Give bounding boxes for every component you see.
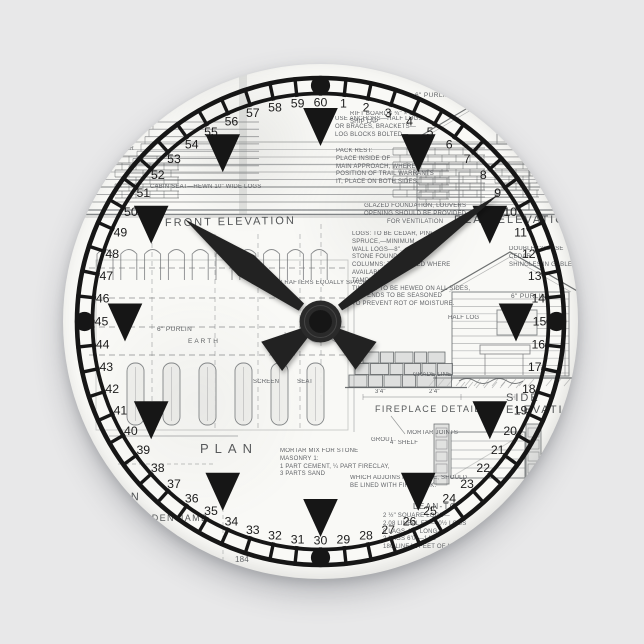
dial-overlay: 1234567891011121314151617181920212223242… (0, 0, 644, 644)
minute-numeral: 14 (531, 292, 545, 306)
minute-tick (488, 473, 503, 486)
minute-numeral: 20 (503, 424, 517, 438)
minute-numeral: 19 (514, 404, 528, 418)
hour-marker-triangle (401, 134, 436, 172)
minute-numeral: 2 (363, 100, 370, 114)
minute-numeral: 44 (96, 337, 110, 351)
minute-numeral: 58 (268, 100, 282, 114)
hour-marker-triangle (205, 134, 240, 172)
minute-numeral: 8 (480, 168, 487, 182)
minute-numeral: 7 (464, 152, 471, 166)
minute-numeral: 56 (225, 114, 239, 128)
minute-numeral: 46 (96, 292, 110, 306)
hour-marker-triangle (499, 304, 534, 342)
minute-numeral: 21 (491, 443, 505, 457)
hour-marker-triangle (134, 206, 169, 244)
minute-numeral: 38 (151, 461, 165, 475)
minute-tick (433, 517, 443, 534)
minute-numeral: 3 (385, 106, 392, 120)
minute-numeral: 37 (167, 477, 181, 491)
minute-numeral: 39 (136, 443, 150, 457)
minute-tick (122, 177, 138, 189)
hour-hand-blade (177, 209, 309, 318)
minute-numeral: 41 (114, 404, 128, 418)
minute-numeral: 42 (105, 382, 119, 396)
minute-numeral: 35 (204, 504, 218, 518)
minute-tick (344, 77, 346, 97)
hour-marker-triangle (303, 108, 338, 146)
minute-numeral: 32 (268, 529, 282, 543)
minute-numeral: 6 (446, 137, 453, 151)
minute-tick (545, 296, 565, 298)
minute-numeral: 23 (460, 477, 474, 491)
minute-numeral: 47 (99, 269, 113, 283)
minute-numeral: 57 (246, 106, 260, 120)
minute-tick (108, 199, 125, 209)
minute-numeral: 25 (423, 504, 437, 518)
minute-numeral: 54 (185, 137, 199, 151)
minute-numeral: 45 (95, 315, 109, 329)
minute-tick (488, 157, 503, 170)
minute-hand-blade (334, 185, 506, 316)
minute-tick (503, 454, 519, 466)
minute-numeral: 33 (246, 523, 260, 537)
minute-tick (176, 504, 188, 520)
minute-tick (453, 123, 465, 139)
minute-numeral: 59 (291, 97, 305, 111)
minute-numeral: 9 (494, 186, 501, 200)
minute-tick (122, 454, 138, 466)
minute-numeral: 17 (528, 360, 542, 374)
minute-tick (108, 434, 125, 444)
minute-tick (472, 489, 485, 504)
minute-tick (76, 345, 96, 347)
minute-tick (516, 434, 533, 444)
minute-numeral: 18 (522, 382, 536, 396)
minute-numeral: 40 (124, 424, 138, 438)
minute-tick (503, 177, 519, 189)
minute-numeral: 27 (381, 523, 395, 537)
minute-numeral: 16 (531, 337, 545, 351)
hour-marker-triangle (134, 401, 169, 439)
minute-numeral: 53 (167, 152, 181, 166)
minute-numeral: 28 (359, 529, 373, 543)
minute-numeral: 11 (514, 225, 527, 239)
hour-marker-triangle (303, 499, 338, 537)
minute-numeral: 29 (337, 532, 351, 546)
minute-tick (433, 109, 443, 126)
minute-numeral: 43 (99, 360, 113, 374)
minute-numeral: 1 (340, 97, 347, 111)
cardinal-dot (75, 312, 94, 331)
minute-tick (76, 296, 96, 298)
minute-tick (453, 504, 465, 520)
minute-hand (261, 179, 510, 371)
minute-tick (545, 345, 565, 347)
minute-tick (472, 139, 485, 154)
product-photo: FRONT ELEVATION REAR ELEVATION SIDE ELEV… (0, 0, 644, 644)
hour-marker-triangle (473, 401, 508, 439)
hour-marker-triangle (108, 304, 143, 342)
minute-tick (295, 546, 297, 566)
minute-tick (198, 109, 208, 126)
wall-clock: FRONT ELEVATION REAR ELEVATION SIDE ELEV… (0, 0, 644, 644)
minute-numeral: 51 (136, 186, 150, 200)
minute-tick (516, 199, 533, 209)
minute-numeral: 12 (522, 247, 536, 261)
hand-hub-cap (309, 310, 332, 333)
minute-numeral: 24 (442, 492, 456, 506)
minute-tick (156, 489, 169, 504)
minute-numeral: 49 (114, 225, 128, 239)
minute-numeral: 34 (225, 515, 239, 529)
minute-numeral: 48 (105, 247, 119, 261)
minute-numeral: 31 (291, 532, 305, 546)
minute-numeral: 36 (185, 492, 199, 506)
minute-numeral: 26 (403, 515, 417, 529)
minute-tick (295, 77, 297, 97)
minute-numeral: 22 (476, 461, 490, 475)
minute-numeral: 15 (533, 315, 547, 329)
cardinal-dot (547, 312, 566, 331)
cardinal-dot (311, 76, 330, 95)
minute-numeral: 4 (406, 114, 413, 128)
minute-tick (198, 517, 208, 534)
minute-tick (344, 546, 346, 566)
minute-numeral: 13 (528, 269, 542, 283)
minute-numeral: 60 (314, 96, 328, 110)
clock-hands (174, 179, 510, 371)
cardinal-dot (311, 548, 330, 567)
minute-numeral: 52 (151, 168, 165, 182)
